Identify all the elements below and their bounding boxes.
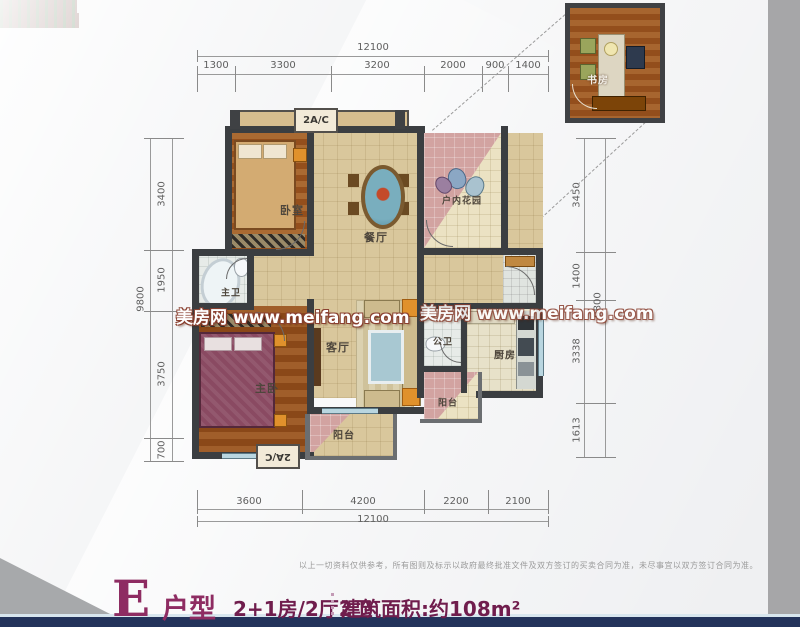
dim-top-seg: 3300 — [270, 60, 295, 71]
dim-top-seg: 3200 — [364, 60, 389, 71]
pillar — [395, 110, 405, 129]
room-label-master-bath: 主卫 — [221, 286, 241, 299]
cabinet — [592, 96, 646, 111]
room-label-dining: 餐厅 — [364, 229, 388, 245]
dim-left-seg: 700 — [157, 440, 168, 459]
dim-bottom-seg: 3600 — [236, 496, 261, 507]
dining-chair — [348, 174, 359, 187]
unit-area-text: 建筑面积:约108m² — [341, 593, 520, 622]
room-label-public-bath: 公卫 — [433, 335, 453, 348]
dim-right-seg: 1613 — [572, 417, 583, 442]
room-label-balcony-side: 阳台 — [438, 396, 458, 409]
dim-left-seg: 3400 — [157, 181, 168, 206]
room-label-balcony-bottom: 阳台 — [333, 427, 355, 442]
dim-bottom-seg: 2100 — [505, 496, 530, 507]
dining-table — [361, 165, 405, 229]
dining-chair — [348, 202, 359, 215]
dim-right-seg: 3450 — [572, 182, 583, 207]
dim-bottom-seg: 2200 — [443, 496, 468, 507]
pillow — [263, 144, 287, 159]
dim-left-seg: 3750 — [157, 361, 168, 386]
dim-left-total: 9800 — [136, 286, 147, 311]
pillow — [238, 144, 262, 159]
watermark: 美房网 www.meifang.com — [176, 303, 410, 328]
ac-unit-label-bottom: 2A/C — [256, 444, 300, 469]
pillow — [204, 337, 232, 351]
dim-top-total: 12100 — [357, 42, 389, 53]
sofa-seat — [364, 390, 400, 408]
chair — [580, 38, 596, 54]
dim-top-seg: 1300 — [203, 60, 228, 71]
nightstand — [274, 414, 287, 427]
window — [322, 408, 378, 414]
ac-unit-label-top: 2A/C — [294, 108, 338, 133]
coffee-table — [368, 330, 404, 384]
unit-type-letter: E — [112, 574, 150, 624]
floorplan-page: 12100 1300 3300 3200 2000 900 1400 3600 … — [0, 0, 800, 627]
office-chair — [626, 46, 645, 69]
room-label-garden: 户内花园 — [442, 194, 482, 207]
counter-appliance — [518, 362, 534, 376]
dim-right-seg: 3338 — [572, 338, 583, 363]
title-separator — [331, 593, 334, 615]
room-label-bedroom: 卧室 — [280, 202, 304, 218]
dim-bottom-seg: 4200 — [350, 496, 375, 507]
dim-top-seg: 1400 — [515, 60, 540, 71]
dim-top-seg: 2000 — [440, 60, 465, 71]
dim-right-seg: 1400 — [572, 263, 583, 288]
disclaimer-text: 以上一切资料仅供参考，所有图则及标示以政府最终批准文件及双方签订的买卖合同为准，… — [299, 560, 758, 571]
window — [538, 320, 544, 376]
sink — [518, 338, 534, 356]
pillar — [230, 110, 240, 129]
room-label-master-bedroom: 主卧 — [255, 380, 279, 396]
dim-left-seg: 1950 — [157, 267, 168, 292]
room-label-study: 书房 — [587, 72, 609, 87]
watermark: 美房网 www.meifang.com — [420, 299, 654, 324]
right-gray-band — [768, 0, 800, 627]
nightstand — [293, 148, 307, 162]
room-label-kitchen: 厨房 — [494, 347, 516, 362]
tv-cabinet — [314, 328, 321, 386]
desk-lamp — [604, 42, 618, 56]
room-label-living: 客厅 — [326, 339, 350, 355]
unit-type-suffix: 户型 — [162, 587, 216, 626]
dim-bottom-total: 12100 — [357, 514, 389, 525]
